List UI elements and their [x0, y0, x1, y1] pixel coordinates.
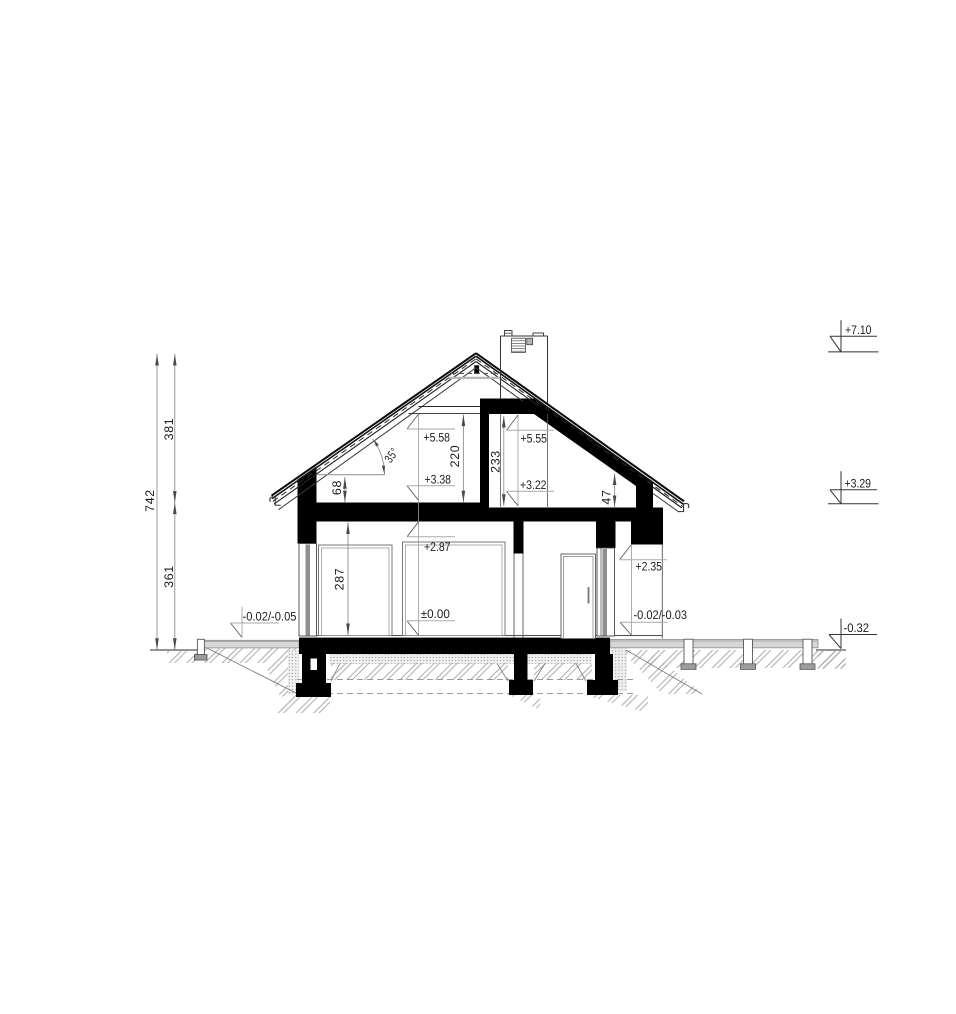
svg-text:220: 220: [448, 445, 462, 468]
svg-text:-0.02/-0.03: -0.02/-0.03: [634, 608, 688, 622]
svg-text:+5.55: +5.55: [521, 431, 548, 445]
svg-text:±0.00: ±0.00: [421, 607, 450, 621]
svg-text:361: 361: [162, 565, 176, 588]
svg-text:381: 381: [162, 418, 176, 441]
svg-text:+2.87: +2.87: [424, 540, 451, 554]
svg-text:-0.02/-0.05: -0.02/-0.05: [243, 610, 297, 624]
svg-text:287: 287: [333, 568, 347, 591]
svg-text:742: 742: [143, 489, 157, 512]
svg-text:+3.22: +3.22: [520, 478, 547, 492]
svg-text:47: 47: [599, 489, 613, 504]
svg-text:+2.35: +2.35: [636, 560, 663, 574]
svg-text:-0.32: -0.32: [844, 621, 870, 635]
svg-text:+3.29: +3.29: [845, 477, 872, 491]
svg-text:68: 68: [330, 480, 344, 495]
svg-text:+3.38: +3.38: [425, 473, 452, 487]
svg-text:+5.58: +5.58: [424, 430, 451, 444]
svg-text:233: 233: [488, 450, 502, 473]
svg-text:+7.10: +7.10: [845, 323, 872, 337]
